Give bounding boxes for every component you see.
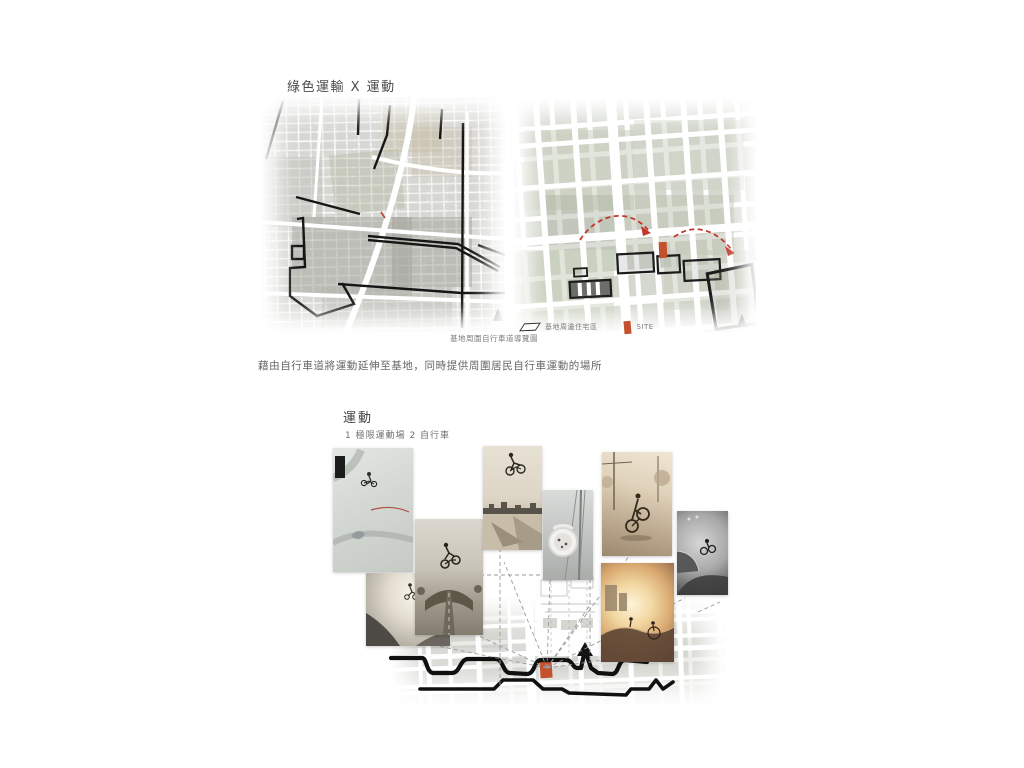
- bike-route-overview-map: [262, 97, 505, 332]
- left-map-graphic: [262, 97, 505, 332]
- section-title-sport: 運動: [343, 407, 373, 426]
- legend-residential-label: 基地周邊住宅區: [545, 322, 598, 332]
- left-map-caption: 基地周圍自行車道導覽圖: [375, 333, 538, 344]
- photo-aerial-skatepark: [333, 448, 413, 572]
- presentation-board: 綠色運輸 X 運動: [0, 0, 1024, 768]
- map-legend: 基地周邊住宅區 SITE: [518, 319, 754, 335]
- section-description: 藉由自行車道將運動延伸至基地，同時提供周圍居民自行車運動的場所: [258, 358, 602, 373]
- photo-bmx-street-wheelie: [602, 452, 672, 556]
- photo-bmx-dirt-jump: [415, 519, 483, 635]
- skatepark-banner: [335, 456, 345, 478]
- photo-fullpipe-wheel-view: [543, 490, 593, 580]
- photo-skatepark-sunset-bowl: [601, 563, 674, 662]
- site-context-map: 基地周邊住宅區 SITE: [514, 100, 756, 332]
- legend-site-label: SITE: [637, 323, 654, 331]
- bw-rider-silhouette: [701, 539, 716, 555]
- bmx-rider-silhouette: [441, 543, 460, 568]
- bmx-rider-silhouette: [361, 472, 376, 487]
- photo-skatepark-bw-fisheye: [677, 511, 728, 595]
- tailwhip-rider-silhouette: [506, 453, 525, 475]
- right-map-graphic: [514, 100, 756, 332]
- residential-swatch-icon: [519, 323, 541, 332]
- wheelie-rider-silhouette: [626, 494, 649, 533]
- site-marker: [659, 242, 668, 258]
- section-title-green-transport: 綠色運輸 X 運動: [287, 76, 396, 95]
- site-swatch-icon: [623, 320, 631, 334]
- photo-bmx-tailwhip-sky: [483, 446, 542, 550]
